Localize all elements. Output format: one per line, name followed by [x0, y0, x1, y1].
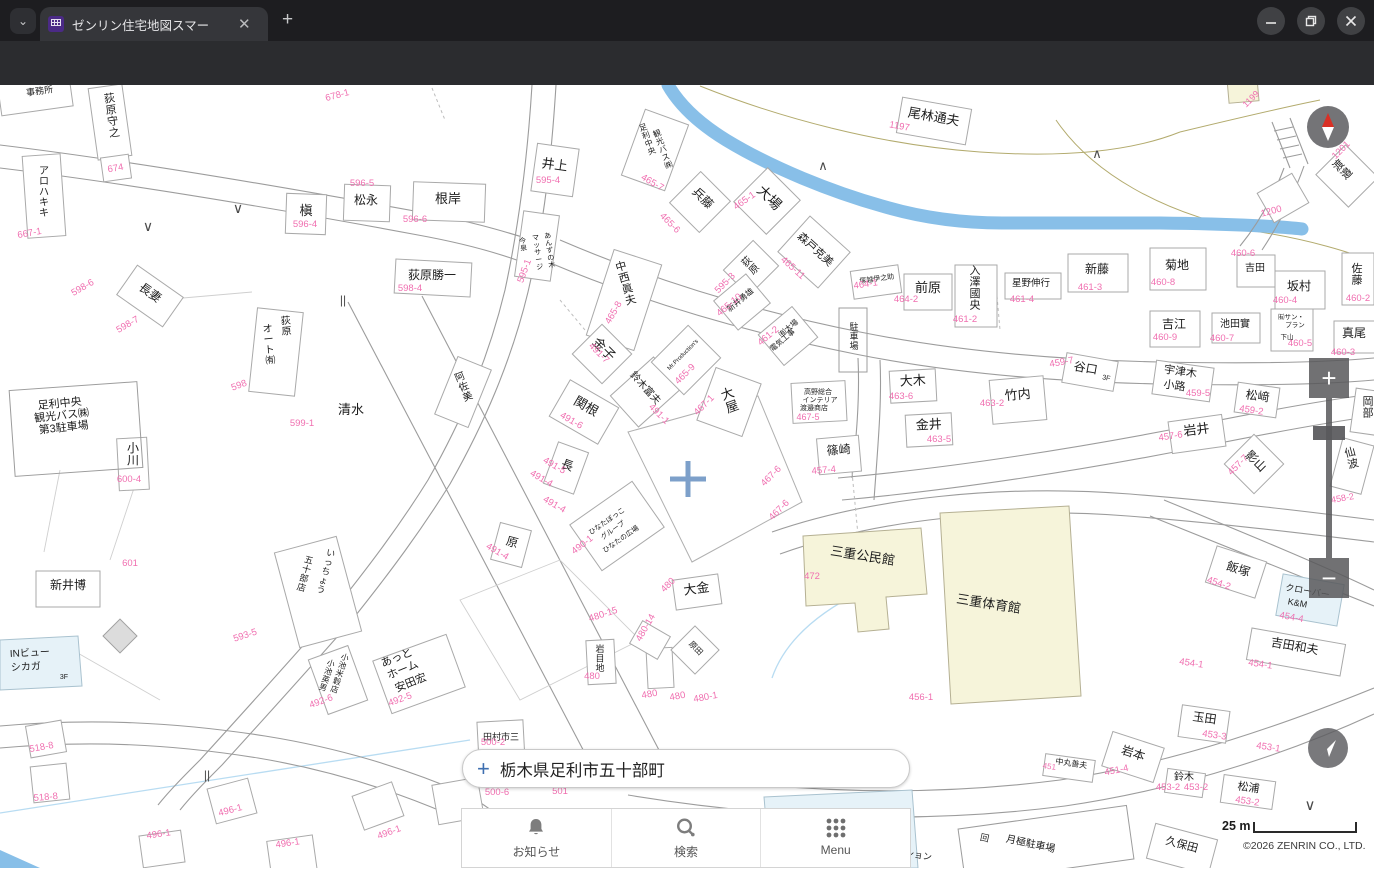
parcel-number: 1197	[888, 119, 910, 133]
building-name: 吉田	[1245, 262, 1265, 274]
parcel-number: 598	[230, 378, 249, 394]
parcel-number: 480	[669, 690, 687, 704]
parcel-number: 457-4	[811, 464, 836, 477]
current-location-button[interactable]	[1308, 728, 1348, 768]
parcel-number: 459-5	[1186, 388, 1210, 399]
building-name: 新藤	[1085, 261, 1109, 276]
building	[103, 619, 137, 653]
browser-tabstrip: ⌄ ゼンリン住宅地図スマー ✕ +	[0, 0, 1374, 41]
building-name: 岩目地	[595, 643, 604, 673]
parcel-number: 595-4	[536, 175, 560, 186]
parcel-number: 460-2	[1346, 293, 1370, 304]
parcel-number: 460-5	[1288, 338, 1312, 349]
parcel-number: 460-7	[1210, 333, 1234, 344]
parcel-number: 598-6	[69, 277, 96, 299]
parcel-number: 472	[804, 571, 820, 582]
parcel-number: 465-6	[657, 211, 682, 236]
zoom-slider-handle[interactable]	[1313, 426, 1345, 440]
building-name: 真尾	[1342, 326, 1366, 340]
new-tab-button[interactable]: +	[282, 10, 293, 29]
parcel-number: 453-2	[1235, 794, 1261, 808]
window-maximize-button[interactable]	[1297, 7, 1325, 35]
parcel-number: 599-1	[290, 418, 314, 429]
map-symbol: ∧	[1092, 146, 1102, 161]
parcel-number: 467-6	[759, 464, 784, 489]
building-name: 松永	[354, 193, 378, 207]
building	[352, 782, 404, 830]
building-name: 駐車場	[849, 321, 858, 351]
parcel-number: 596-4	[293, 219, 317, 230]
building	[207, 778, 257, 824]
parcel-number: 500-2	[481, 737, 505, 748]
building-name: 渡邉商店	[800, 403, 828, 412]
nav-label: Menu	[821, 843, 851, 857]
parcel-number: 596-5	[350, 178, 374, 189]
public-building-kominkan	[803, 528, 927, 632]
map-attribution: ©2026 ZENRIN CO., LTD.	[1243, 840, 1366, 852]
nav-item-menu[interactable]: Menu	[761, 809, 910, 867]
building-name: 池田實	[1220, 317, 1250, 330]
parcel-number: 467-5	[796, 412, 819, 422]
parcel-number: 456-1	[909, 692, 933, 703]
parcel-number: 500-6	[485, 787, 509, 798]
building-name: アロハキキ	[39, 166, 49, 219]
building-name: 高野総合	[804, 387, 832, 396]
map-symbol: ||	[340, 293, 346, 307]
parcel-number: 461-4	[1010, 294, 1034, 305]
parcel-number: 454-1	[1248, 657, 1274, 671]
building-name: 荻原	[280, 315, 292, 338]
bell-icon	[523, 816, 549, 840]
parcel-number: 463-5	[927, 434, 951, 445]
window-minimize-button[interactable]	[1257, 7, 1285, 35]
minimize-icon	[1265, 15, 1277, 27]
building-name: 月極駐車場	[1005, 832, 1057, 855]
building-name: 根岸	[435, 191, 461, 206]
nav-item-notifications[interactable]: お知らせ	[462, 809, 612, 867]
building-name: 佐藤	[1352, 261, 1363, 287]
map-symbol: ∨	[1305, 797, 1316, 814]
parcel-number: 453-2	[1184, 782, 1208, 793]
nav-label: お知らせ	[512, 843, 560, 860]
building-name: 金井	[915, 416, 942, 432]
building-name: 菊地	[1165, 258, 1189, 272]
parcel-number: 461-3	[1078, 282, 1102, 293]
map-symbol: ||	[204, 768, 210, 782]
parcel-number: 480	[584, 671, 600, 682]
building-name: プラン	[1285, 321, 1305, 329]
building-name: 回	[979, 832, 990, 844]
search-icon	[673, 816, 699, 840]
parcel-number: 496-1	[376, 823, 403, 842]
close-icon	[1345, 15, 1357, 27]
parcel-number: 467-6	[767, 498, 792, 523]
nav-item-search[interactable]: 検索	[612, 809, 762, 867]
site-favicon	[48, 16, 64, 32]
zoom-slider-track[interactable]	[1326, 398, 1332, 558]
scale-bar	[1253, 822, 1357, 833]
building-name: 3F	[1102, 374, 1111, 382]
building-name: 吉江	[1162, 317, 1186, 331]
search-address-text: 栃木県足利市五十部町	[500, 757, 665, 781]
address-search-bar[interactable]: + 栃木県足利市五十部町	[462, 749, 910, 788]
parcel-number: 460-6	[1231, 248, 1255, 259]
parcel-number: 667-1	[17, 226, 43, 241]
tab-search-chevron-icon[interactable]: ⌄	[10, 8, 36, 34]
browser-tab[interactable]: ゼンリン住宅地図スマー ✕	[40, 7, 268, 41]
parcel-number: 596-6	[403, 214, 427, 225]
parcel-number: 458-2	[1330, 491, 1354, 505]
building-name: 大木	[899, 372, 926, 388]
tab-close-icon[interactable]: ✕	[238, 17, 251, 32]
building	[249, 308, 304, 396]
tab-title: ゼンリン住宅地図スマー	[72, 15, 232, 34]
parcel-number: 454-1	[1179, 656, 1205, 670]
building-name: 竹内	[1004, 386, 1031, 403]
parcel-number: 460-8	[1151, 277, 1175, 288]
parcel-number: 453-1	[1256, 740, 1282, 754]
parcel-number: 461-2	[953, 314, 977, 325]
building-name: 入澤國央	[970, 265, 981, 312]
search-crosshair-icon: +	[477, 758, 490, 780]
browser-toolbar: ← → ↻ app.zip-site.com/smt/app/map.htm ⋮	[0, 41, 1374, 85]
window-close-button[interactable]	[1337, 7, 1365, 35]
parcel-number: 600-4	[117, 474, 141, 485]
parcel-number: 598-4	[398, 283, 422, 294]
parcel-number: 491-4	[541, 494, 568, 516]
maximize-icon	[1305, 15, 1317, 27]
parcel-number: 460-3	[1331, 347, 1355, 358]
compass-south-needle	[1322, 127, 1334, 141]
building-name: 坂村	[1287, 279, 1311, 293]
parcel-number: 480-1	[693, 690, 719, 705]
building-name: 小川	[127, 441, 139, 468]
parcel-number: 601	[122, 558, 138, 569]
compass-north-needle	[1322, 113, 1334, 127]
building-name: INビュー	[10, 646, 51, 660]
building-name: 3F	[60, 674, 68, 681]
building-name: 槇	[299, 203, 312, 218]
parcel-number: 464-2	[894, 294, 918, 305]
building-name: シカガ	[11, 660, 42, 674]
building-name: 新井博	[50, 577, 86, 592]
parcel-number: 593-5	[232, 627, 259, 645]
map-symbol: ∨	[233, 200, 243, 216]
zoom-in-button[interactable]: +	[1309, 358, 1349, 398]
parcel-number: 480-15	[587, 605, 619, 625]
building-name: 清水	[338, 402, 364, 417]
building-name: 篠崎	[826, 441, 851, 458]
building-name: 荻原勝一	[408, 267, 456, 282]
building-name: インテリア	[803, 396, 838, 404]
building-name: 星野伸行	[1012, 277, 1051, 289]
parcel-number: 451	[1042, 761, 1057, 772]
building-name: 前原	[915, 280, 941, 295]
parcel-number: 518-8	[33, 791, 58, 804]
water-corner	[0, 850, 40, 868]
parcel-number: 460-9	[1153, 332, 1177, 343]
grid-menu-icon	[823, 816, 849, 840]
parcel-number: 463-6	[889, 391, 913, 402]
parcel-number: 453-2	[1156, 782, 1180, 793]
zoom-out-button[interactable]: −	[1309, 558, 1349, 598]
map-symbol: ∧	[818, 158, 828, 173]
building-name: 岡部	[1363, 396, 1374, 420]
map-symbol: ∨	[143, 218, 153, 234]
parcel-number: 678-1	[324, 87, 350, 104]
bottom-navigation: お知らせ 検索 Menu	[461, 808, 911, 868]
parcel-number: 480	[641, 688, 659, 702]
navigation-arrow-icon	[1317, 737, 1339, 759]
scale-label: 25 m	[1222, 819, 1251, 833]
nav-label: 検索	[674, 843, 698, 860]
compass-button[interactable]	[1307, 106, 1349, 148]
building-name: ㈲サン・	[1278, 312, 1304, 321]
parcel-number: 598-7	[114, 314, 141, 336]
center-crosshair-icon	[670, 461, 706, 497]
parcel-number: 460-4	[1273, 295, 1297, 306]
parcel-number: 463-2	[980, 398, 1004, 409]
